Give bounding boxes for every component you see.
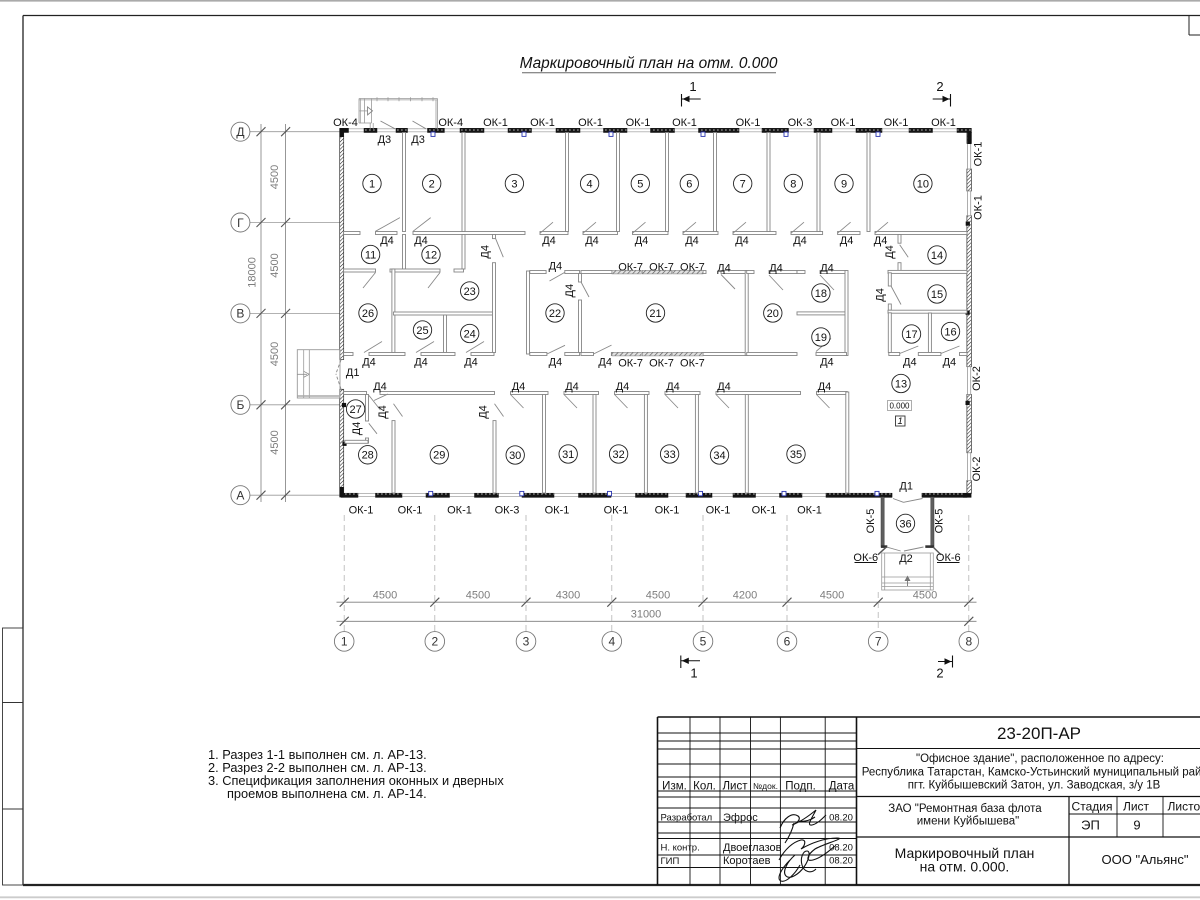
svg-text:ОК-1: ОК-1 — [545, 505, 570, 517]
svg-text:ОК-1: ОК-1 — [604, 505, 629, 517]
svg-text:Д2: Д2 — [899, 553, 913, 565]
svg-text:11: 11 — [365, 249, 376, 261]
svg-text:35: 35 — [790, 449, 802, 461]
svg-text:пгт. Куйбышевский Затон, ул. З: пгт. Куйбышевский Затон, ул. Заводская, … — [908, 780, 1161, 792]
svg-text:4500: 4500 — [913, 590, 937, 602]
svg-text:4500: 4500 — [269, 253, 281, 277]
svg-text:32: 32 — [612, 449, 624, 461]
svg-text:ЭП: ЭП — [1081, 818, 1100, 833]
svg-text:Б: Б — [236, 398, 244, 412]
svg-text:3: 3 — [523, 635, 530, 649]
svg-text:имени Куйбышева": имени Куйбышева" — [917, 816, 1020, 828]
svg-text:27: 27 — [349, 404, 361, 416]
svg-text:2: 2 — [431, 635, 438, 649]
svg-text:Д4: Д4 — [874, 288, 886, 302]
svg-text:21: 21 — [649, 308, 661, 320]
svg-text:ОК-5: ОК-5 — [865, 509, 877, 534]
svg-text:31000: 31000 — [631, 608, 662, 620]
svg-text:Д4: Д4 — [377, 405, 389, 419]
svg-text:2: 2 — [936, 79, 943, 94]
svg-text:0.000: 0.000 — [889, 401, 910, 410]
svg-text:4: 4 — [587, 178, 593, 190]
svg-text:33: 33 — [663, 449, 675, 461]
svg-text:"Офисное здание", расположенно: "Офисное здание", расположенное по адрес… — [916, 753, 1164, 765]
svg-text:Д4: Д4 — [903, 357, 917, 369]
svg-text:Д4: Д4 — [480, 245, 492, 259]
svg-text:8: 8 — [790, 178, 796, 190]
svg-text:4500: 4500 — [820, 590, 844, 602]
svg-text:Д4: Д4 — [585, 235, 599, 247]
svg-text:Лист: Лист — [723, 781, 749, 793]
svg-text:№док.: №док. — [753, 781, 778, 791]
svg-text:ОК-1: ОК-1 — [349, 505, 374, 517]
svg-text:Д4: Д4 — [769, 263, 783, 275]
svg-text:ОК-1: ОК-1 — [736, 117, 761, 129]
svg-text:10: 10 — [917, 178, 929, 190]
svg-text:8: 8 — [965, 635, 972, 649]
svg-text:Д4: Д4 — [362, 357, 376, 369]
svg-text:29: 29 — [433, 450, 445, 462]
svg-text:4500: 4500 — [373, 590, 397, 602]
svg-text:4: 4 — [608, 635, 615, 649]
svg-text:Д4: Д4 — [380, 235, 394, 247]
svg-text:1: 1 — [341, 635, 348, 649]
svg-text:4500: 4500 — [269, 430, 281, 454]
svg-text:проемов выполнена см. л. АР-14: проемов выполнена см. л. АР-14. — [227, 786, 427, 801]
svg-text:ОК-4: ОК-4 — [438, 117, 463, 129]
svg-text:Д4: Д4 — [820, 263, 834, 275]
svg-text:1: 1 — [898, 416, 903, 427]
svg-text:5: 5 — [700, 635, 707, 649]
svg-text:Д3: Д3 — [378, 134, 392, 146]
svg-text:1: 1 — [690, 666, 697, 681]
svg-text:Д4: Д4 — [565, 381, 579, 393]
svg-text:18: 18 — [815, 288, 827, 300]
svg-text:Д4: Д4 — [414, 357, 428, 369]
svg-text:В: В — [236, 307, 244, 321]
svg-text:22: 22 — [549, 308, 561, 320]
svg-text:08.20: 08.20 — [829, 856, 853, 867]
svg-text:ОК-1: ОК-1 — [655, 505, 680, 517]
svg-text:ОК-7: ОК-7 — [649, 358, 674, 370]
svg-text:Д4: Д4 — [874, 235, 888, 247]
svg-text:А: А — [236, 489, 244, 503]
svg-text:Д4: Д4 — [414, 235, 428, 247]
svg-text:2: 2 — [429, 178, 435, 190]
svg-text:15: 15 — [931, 289, 943, 301]
svg-text:16: 16 — [944, 326, 956, 338]
svg-text:4300: 4300 — [556, 590, 580, 602]
svg-text:Д4: Д4 — [793, 235, 807, 247]
svg-text:Подп.: Подп. — [785, 781, 816, 793]
svg-text:ГИП: ГИП — [661, 856, 680, 867]
svg-text:ОК-7: ОК-7 — [618, 358, 643, 370]
svg-text:ОК-7: ОК-7 — [680, 262, 705, 274]
svg-text:Д4: Д4 — [598, 357, 612, 369]
svg-text:ОК-1: ОК-1 — [483, 117, 508, 129]
svg-text:4500: 4500 — [646, 590, 670, 602]
svg-text:Коротаев: Коротаев — [723, 855, 771, 867]
svg-text:ОК-1: ОК-1 — [672, 117, 697, 129]
svg-text:ОК-7: ОК-7 — [649, 262, 674, 274]
svg-text:Д4: Д4 — [542, 235, 556, 247]
svg-text:ОК-1: ОК-1 — [626, 117, 651, 129]
svg-text:Д4: Д4 — [373, 381, 387, 393]
svg-text:1: 1 — [369, 178, 375, 190]
svg-text:23: 23 — [464, 286, 476, 298]
svg-text:4200: 4200 — [733, 590, 757, 602]
svg-text:ОК-1: ОК-1 — [931, 117, 956, 129]
svg-text:5: 5 — [637, 178, 643, 190]
svg-text:2: 2 — [936, 666, 943, 681]
svg-text:ОК-3: ОК-3 — [788, 117, 813, 129]
svg-text:ОК-1: ОК-1 — [797, 505, 822, 517]
svg-text:ОК-1: ОК-1 — [398, 505, 423, 517]
svg-text:ОК-4: ОК-4 — [333, 117, 358, 129]
svg-text:4500: 4500 — [466, 590, 490, 602]
svg-text:9: 9 — [1133, 818, 1140, 833]
svg-text:08.20: 08.20 — [829, 813, 853, 824]
svg-text:Д3: Д3 — [411, 134, 425, 146]
svg-text:Д4: Д4 — [818, 381, 832, 393]
svg-text:Листов: Листов — [1168, 800, 1200, 814]
svg-text:1: 1 — [689, 79, 696, 94]
svg-text:ОК-1: ОК-1 — [973, 142, 985, 167]
svg-text:17: 17 — [905, 329, 917, 341]
svg-text:Двоеглазов: Двоеглазов — [723, 842, 782, 854]
svg-text:Д4: Д4 — [549, 261, 563, 273]
svg-text:ОК-1: ОК-1 — [831, 117, 856, 129]
svg-text:ОК-7: ОК-7 — [618, 262, 643, 274]
svg-text:Д4: Д4 — [351, 422, 363, 436]
svg-text:Д4: Д4 — [549, 357, 563, 369]
svg-text:ОК-1: ОК-1 — [706, 505, 731, 517]
svg-text:4500: 4500 — [269, 342, 281, 366]
svg-text:ОК-2: ОК-2 — [971, 366, 983, 391]
svg-text:13: 13 — [895, 378, 907, 390]
svg-text:Лист: Лист — [1123, 800, 1150, 814]
svg-text:30: 30 — [509, 450, 521, 462]
svg-text:12: 12 — [425, 249, 437, 261]
svg-text:14: 14 — [931, 250, 943, 262]
svg-text:Разработал: Разработал — [661, 813, 713, 824]
svg-text:Эфрос: Эфрос — [723, 812, 758, 824]
svg-text:Д4: Д4 — [884, 245, 896, 259]
svg-text:Дата: Дата — [829, 781, 855, 793]
svg-text:Маркировочный план на отм. 0.0: Маркировочный план на отм. 0.000 — [520, 55, 778, 72]
svg-text:3: 3 — [511, 178, 517, 190]
svg-text:на отм. 0.000.: на отм. 0.000. — [920, 859, 1010, 875]
svg-text:26: 26 — [362, 308, 374, 320]
svg-text:Д: Д — [236, 125, 244, 139]
svg-text:ОК-1: ОК-1 — [578, 117, 603, 129]
svg-text:Д4: Д4 — [478, 405, 490, 419]
svg-text:Д4: Д4 — [735, 235, 749, 247]
svg-text:4500: 4500 — [269, 165, 281, 189]
svg-text:19: 19 — [815, 332, 827, 344]
svg-text:ОК-3: ОК-3 — [495, 505, 520, 517]
svg-text:Д4: Д4 — [717, 263, 731, 275]
svg-text:7: 7 — [740, 178, 746, 190]
svg-text:Д4: Д4 — [840, 235, 854, 247]
svg-text:ОК-1: ОК-1 — [447, 505, 472, 517]
svg-text:25: 25 — [416, 325, 428, 337]
svg-text:Г: Г — [237, 216, 244, 230]
svg-text:31: 31 — [562, 449, 574, 461]
svg-text:Д1: Д1 — [899, 481, 913, 493]
svg-text:Н. контр.: Н. контр. — [661, 843, 700, 854]
svg-text:7: 7 — [875, 635, 882, 649]
svg-text:Республика Татарстан, Камско-У: Республика Татарстан, Камско-Устьинский … — [862, 767, 1200, 779]
svg-text:6: 6 — [686, 178, 692, 190]
svg-text:Д4: Д4 — [820, 357, 834, 369]
svg-text:6: 6 — [784, 635, 791, 649]
svg-text:ОК-7: ОК-7 — [680, 358, 705, 370]
svg-text:Д4: Д4 — [943, 357, 957, 369]
svg-text:Д4: Д4 — [512, 381, 526, 393]
svg-text:Д4: Д4 — [635, 235, 649, 247]
svg-text:ЗАО "Ремонтная база флота: ЗАО "Ремонтная база флота — [888, 803, 1042, 815]
svg-text:9: 9 — [841, 178, 847, 190]
svg-text:Стадия: Стадия — [1072, 800, 1113, 814]
svg-text:Д4: Д4 — [616, 381, 630, 393]
svg-text:ОК-1: ОК-1 — [530, 117, 555, 129]
svg-text:23-20П-АР: 23-20П-АР — [997, 724, 1081, 743]
svg-text:18000: 18000 — [247, 257, 259, 288]
svg-text:ОК-5: ОК-5 — [933, 509, 945, 534]
svg-text:28: 28 — [362, 450, 374, 462]
svg-text:Изм.: Изм. — [662, 781, 687, 793]
svg-text:Д1: Д1 — [346, 367, 360, 379]
svg-text:ОК-1: ОК-1 — [884, 117, 909, 129]
svg-text:ООО "Альянс": ООО "Альянс" — [1102, 852, 1189, 867]
svg-text:24: 24 — [464, 328, 476, 340]
svg-text:20: 20 — [767, 308, 779, 320]
svg-text:34: 34 — [713, 450, 725, 462]
svg-text:36: 36 — [899, 518, 911, 530]
svg-text:Д4: Д4 — [464, 357, 478, 369]
svg-text:ОК-1: ОК-1 — [752, 505, 777, 517]
svg-text:Д4: Д4 — [685, 235, 699, 247]
svg-text:Д4: Д4 — [666, 381, 680, 393]
svg-text:ОК-1: ОК-1 — [973, 195, 985, 220]
svg-text:ОК-2: ОК-2 — [971, 457, 983, 482]
svg-text:Д4: Д4 — [564, 284, 576, 298]
svg-text:Кол.: Кол. — [693, 781, 716, 793]
svg-text:Д4: Д4 — [717, 381, 731, 393]
